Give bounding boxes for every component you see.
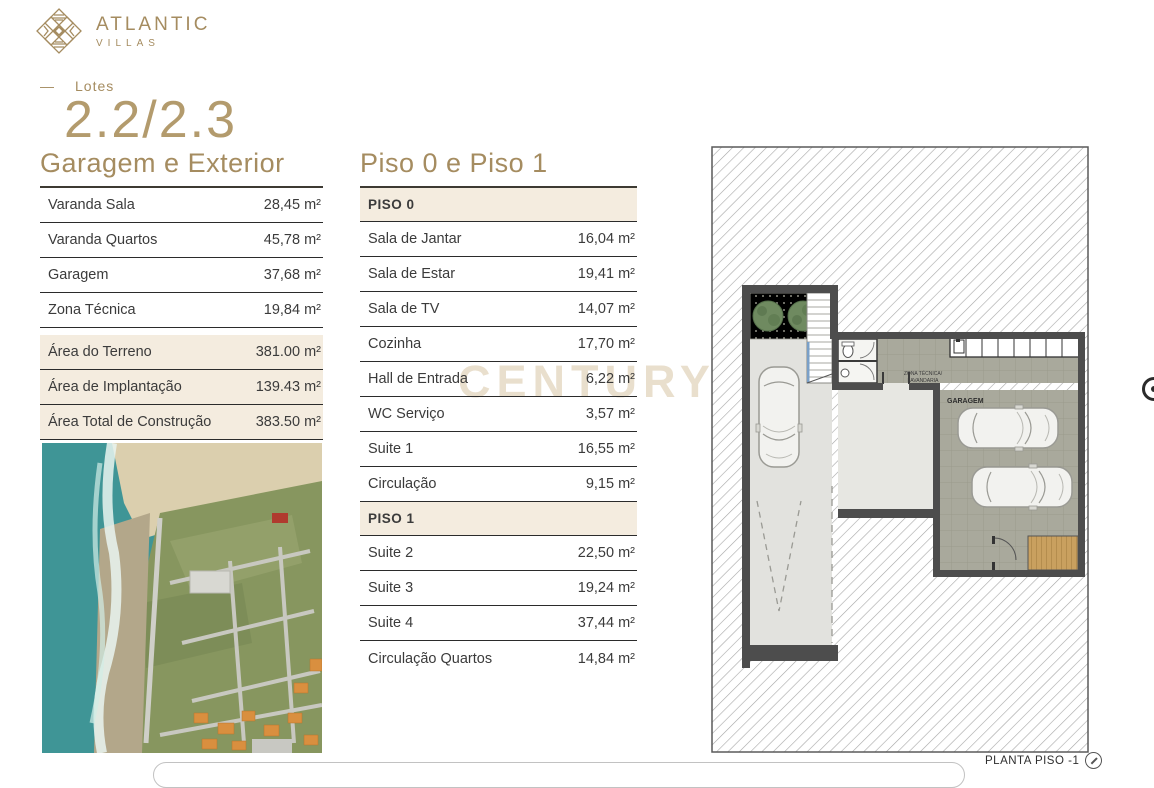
piso-table: Piso 0 e Piso 1 PISO 0 Sala de Jantar 16… (360, 148, 637, 676)
compass-icon[interactable] (1142, 377, 1154, 401)
row-value: 19,84 m² (264, 302, 321, 318)
garagem-exterior-title: Garagem e Exterior (40, 148, 323, 188)
row-value: 16,04 m² (578, 231, 635, 247)
highlight-table-row: Área de Implantação 139.43 m² (40, 370, 323, 405)
row-label: Suite 2 (368, 545, 413, 561)
row-value: 37,68 m² (264, 267, 321, 283)
row-label: Garagem (48, 267, 108, 283)
row-label: Área de Implantação (48, 379, 182, 395)
table-row: Varanda Sala 28,45 m² (40, 188, 323, 223)
brand-logo: ATLANTIC VILLAS (34, 6, 210, 56)
table-row: Suite 3 19,24 m² (360, 571, 637, 606)
row-value: 139.43 m² (256, 379, 321, 395)
row-value: 6,22 m² (586, 371, 635, 387)
area-summary-rows: Área do Terreno 381.00 m² Área de Implan… (40, 335, 323, 440)
row-value: 16,55 m² (578, 441, 635, 457)
row-value: 19,24 m² (578, 580, 635, 596)
bathroom (838, 339, 877, 383)
row-value: 19,41 m² (578, 266, 635, 282)
row-label: Suite 4 (368, 615, 413, 631)
dash-decoration: — (40, 78, 55, 94)
piso1-rows: Suite 2 22,50 m² Suite 3 19,24 m² Suite … (360, 536, 637, 676)
stairs (807, 293, 832, 383)
row-value: 383.50 m² (256, 414, 321, 430)
table-row: Suite 2 22,50 m² (360, 536, 637, 571)
zona-tecnica-label: ZONA TÉCNICA/ (904, 370, 943, 377)
row-value: 14,84 m² (578, 651, 635, 667)
lot-number: 2.2/2.3 (64, 94, 237, 146)
row-label: Varanda Quartos (48, 232, 157, 248)
row-value: 45,78 m² (264, 232, 321, 248)
row-label: Varanda Sala (48, 197, 135, 213)
row-value: 14,07 m² (578, 301, 635, 317)
highlight-table-row: Área Total de Construção 383.50 m² (40, 405, 323, 440)
car-icon (972, 464, 1072, 510)
row-value: 22,50 m² (578, 545, 635, 561)
table-row: Sala de Estar 19,41 m² (360, 257, 637, 292)
row-label: Área Total de Construção (48, 414, 211, 430)
sink-icon (841, 369, 849, 377)
row-label: Circulação Quartos (368, 651, 492, 667)
table-row: Zona Técnica 19,84 m² (40, 293, 323, 328)
car-icon (756, 367, 802, 467)
table-row: Hall de Entrada 6,22 m² (360, 362, 637, 397)
row-label: Área do Terreno (48, 344, 152, 360)
table-row: Garagem 37,68 m² (40, 258, 323, 293)
table-row: Circulação 9,15 m² (360, 467, 637, 502)
row-label: Circulação (368, 476, 437, 492)
row-value: 37,44 m² (578, 615, 635, 631)
table-row: Circulação Quartos 14,84 m² (360, 641, 637, 676)
storage-shelf (950, 337, 1080, 357)
row-value: 381.00 m² (256, 344, 321, 360)
table-row: Varanda Quartos 45,78 m² (40, 223, 323, 258)
table-row: WC Serviço 3,57 m² (360, 397, 637, 432)
pencil-circle-icon[interactable] (1085, 752, 1102, 769)
garagem-exterior-table: Garagem e Exterior Varanda Sala 28,45 m²… (40, 148, 323, 440)
lot-heading: —Lotes 2.2/2.3 (40, 78, 237, 146)
brand-subname: VILLAS (96, 38, 210, 49)
row-label: Hall de Entrada (368, 371, 468, 387)
row-label: Cozinha (368, 336, 421, 352)
car-icon (958, 405, 1058, 451)
row-label: Sala de Estar (368, 266, 455, 282)
row-label: Sala de Jantar (368, 231, 462, 247)
aerial-photo (42, 443, 322, 753)
piso-table-title: Piso 0 e Piso 1 (360, 148, 637, 188)
row-label: Suite 1 (368, 441, 413, 457)
row-label: WC Serviço (368, 406, 445, 422)
row-label: Zona Técnica (48, 302, 136, 318)
plan-caption-text: PLANTA PISO -1 (985, 755, 1079, 767)
tree-icon (753, 301, 783, 331)
atlantic-villas-logo-icon (34, 6, 84, 56)
row-label: Sala de TV (368, 301, 439, 317)
row-value: 3,57 m² (586, 406, 635, 422)
garagem-label: GARAGEM (947, 398, 984, 405)
garagem-exterior-rows: Varanda Sala 28,45 m² Varanda Quartos 45… (40, 188, 323, 328)
table-row: Cozinha 17,70 m² (360, 327, 637, 362)
table-row: Suite 4 37,44 m² (360, 606, 637, 641)
row-label: Suite 3 (368, 580, 413, 596)
floor-plan: ZONA TÉCNICA/ LAVANDARIA GARAGEM (711, 146, 1089, 753)
brand-name: ATLANTIC (96, 14, 210, 36)
row-value: 28,45 m² (264, 197, 321, 213)
plan-caption: PLANTA PISO -1 (985, 752, 1102, 769)
lavandaria-label: LAVANDARIA (908, 378, 940, 384)
row-value: 17,70 m² (578, 336, 635, 352)
piso1-header: PISO 1 (360, 502, 637, 536)
toilet-icon (843, 345, 853, 358)
table-row: Sala de Jantar 16,04 m² (360, 222, 637, 257)
table-row: Sala de TV 14,07 m² (360, 292, 637, 327)
bottom-scrubber-bar[interactable] (153, 762, 965, 788)
row-value: 9,15 m² (586, 476, 635, 492)
piso0-rows: Sala de Jantar 16,04 m² Sala de Estar 19… (360, 222, 637, 502)
piso0-header: PISO 0 (360, 188, 637, 222)
highlight-table-row: Área do Terreno 381.00 m² (40, 335, 323, 370)
table-row: Suite 1 16,55 m² (360, 432, 637, 467)
